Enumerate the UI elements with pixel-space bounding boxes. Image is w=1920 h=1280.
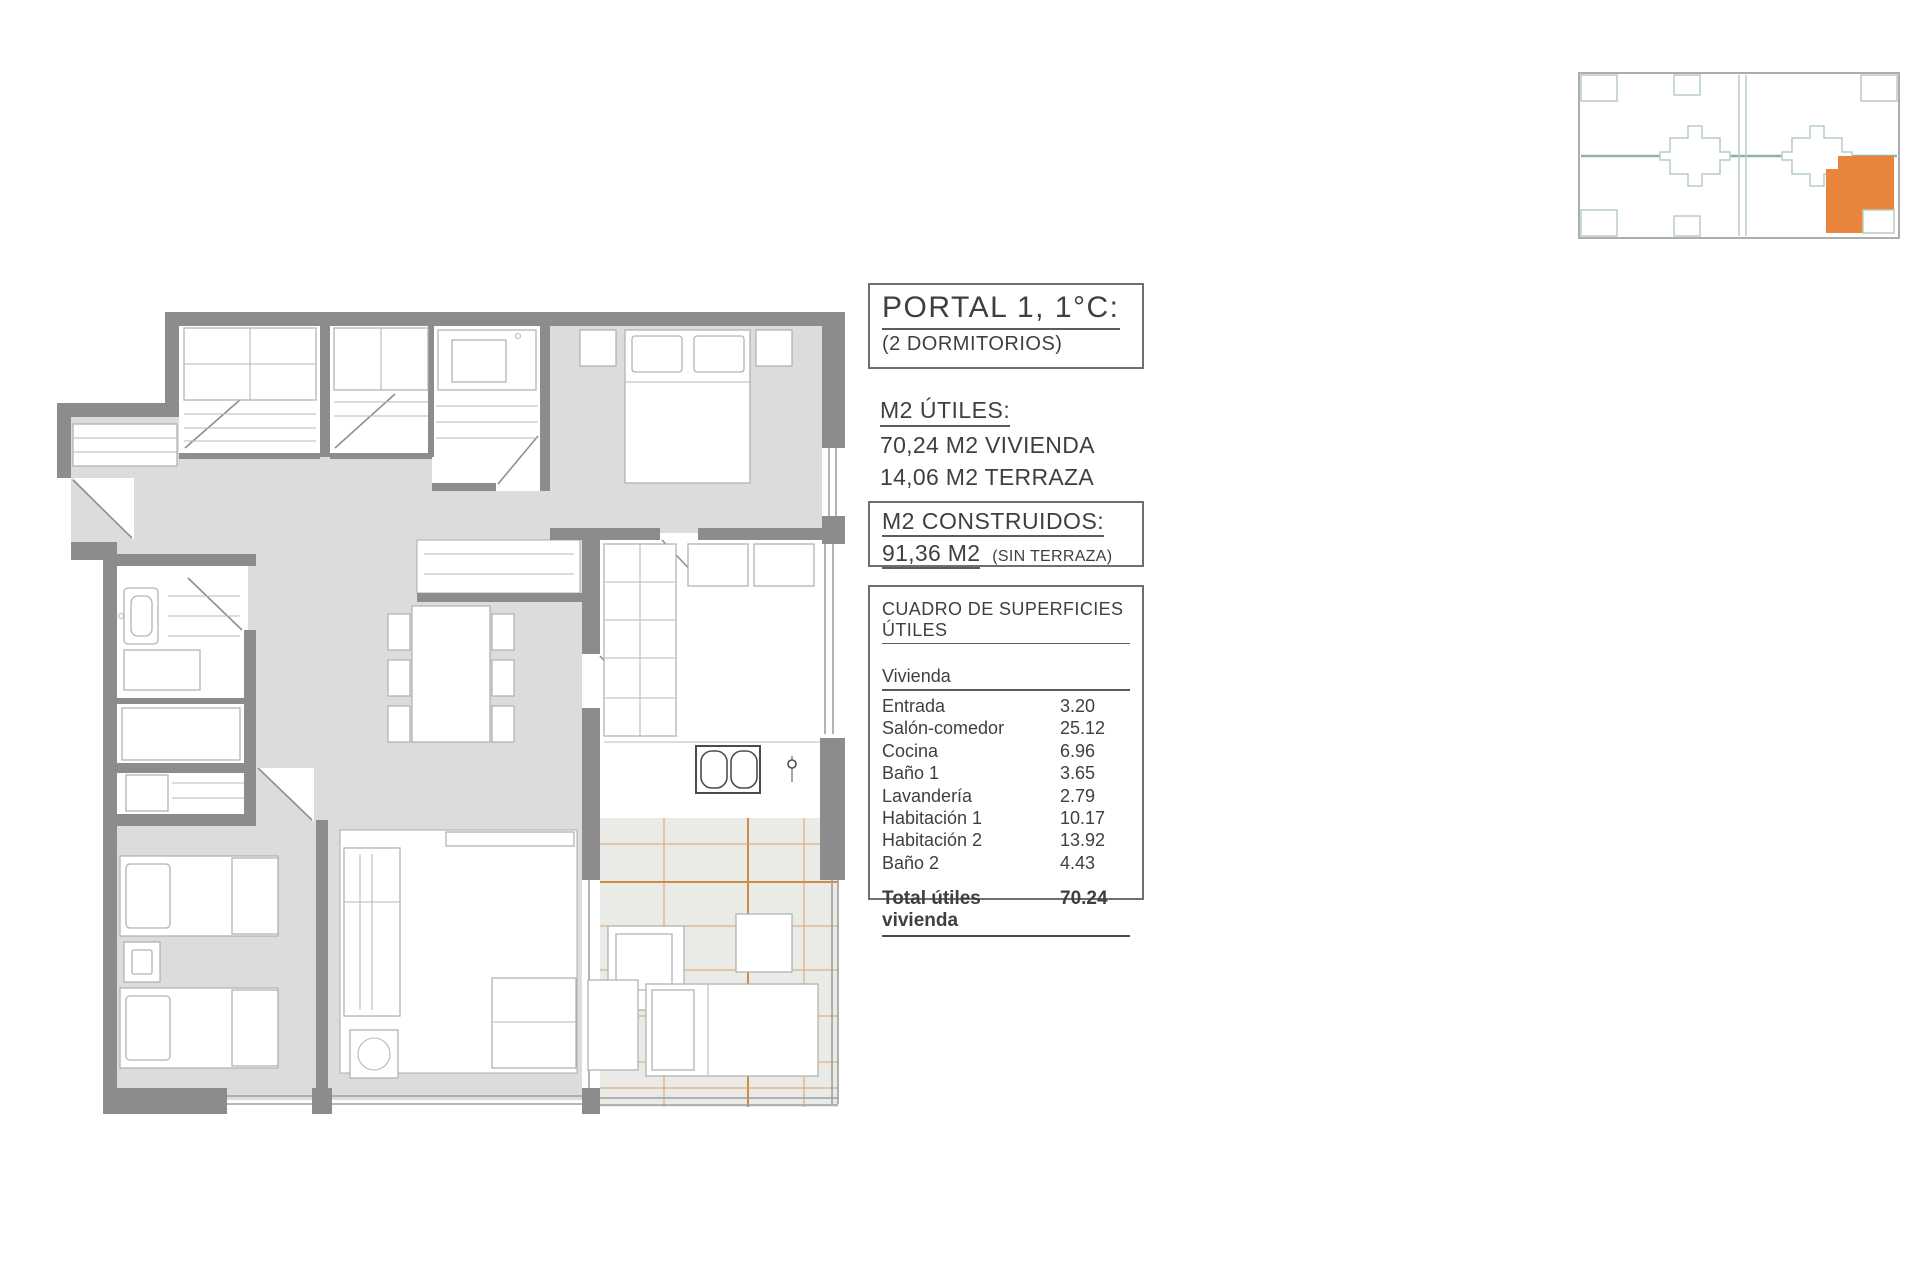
table-row: Habitación 1 10.17 [882,807,1130,829]
m2-construidos-note: (SIN TERRAZA) [992,548,1112,566]
page-title: PORTAL 1, 1°C: [882,291,1120,330]
surface-table: CUADRO DE SUPERFICIES ÚTILES Vivienda En… [868,585,1144,900]
m2-utiles-heading: M2 ÚTILES: [880,397,1010,427]
surface-table-heading: CUADRO DE SUPERFICIES ÚTILES [882,599,1130,644]
m2-utiles-vivienda: 70,24 M2 VIVIENDA [880,432,1144,459]
surface-table-rows: Entrada 3.20 Salón-comedor 25.12 Cocina … [882,695,1130,874]
table-row: Baño 2 4.43 [882,852,1130,874]
table-row: Baño 1 3.65 [882,762,1130,784]
table-row: Lavandería 2.79 [882,785,1130,807]
m2-construidos-value: 91,36 M2 [882,540,980,569]
floor-plan-drawing [48,278,848,1143]
info-column: PORTAL 1, 1°C: (2 DORMITORIOS) M2 ÚTILES… [868,283,1144,900]
m2-construidos-block: M2 CONSTRUIDOS: 91,36 M2 (SIN TERRAZA) [868,501,1144,567]
table-row: Habitación 2 13.92 [882,829,1130,851]
title-block: PORTAL 1, 1°C: (2 DORMITORIOS) [868,283,1144,369]
surface-table-total: Total útiles vivienda 70.24 [882,888,1130,937]
table-row: Entrada 3.20 [882,695,1130,717]
m2-construidos-heading: M2 CONSTRUIDOS: [882,508,1104,537]
surface-table-group: Vivienda [882,666,1130,691]
m2-utiles-block: M2 ÚTILES: 70,24 M2 VIVIENDA 14,06 M2 TE… [868,397,1144,491]
m2-utiles-terraza: 14,06 M2 TERRAZA [880,464,1144,491]
table-row: Salón-comedor 25.12 [882,717,1130,739]
table-row: Cocina 6.96 [882,740,1130,762]
page-subtitle: (2 DORMITORIOS) [882,333,1130,356]
page: PORTAL 1, 1°C: (2 DORMITORIOS) M2 ÚTILES… [0,0,1920,1280]
key-plan [1578,72,1900,239]
